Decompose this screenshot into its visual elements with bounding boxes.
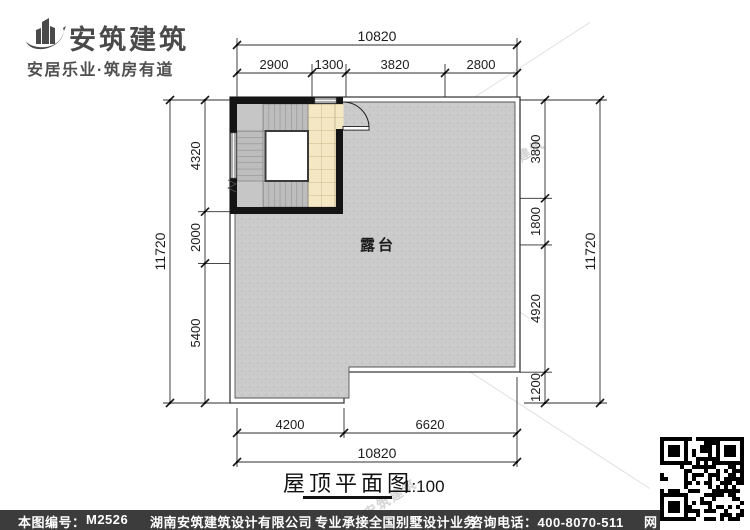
dim-label: 3800 bbox=[528, 135, 543, 164]
door-leaf bbox=[343, 127, 369, 131]
dim-label: 1800 bbox=[528, 207, 543, 236]
stair-flight-top bbox=[263, 104, 308, 131]
room-label-terrace: 露台 bbox=[360, 236, 396, 254]
footer-phone: 咨询电话：400-8070-511 bbox=[470, 512, 624, 530]
floor-plan-drawing: 露台 10820 2900 1300 3820 2800 bbox=[0, 0, 750, 530]
title-block: 屋顶平面图 1:100 bbox=[283, 471, 445, 499]
dim-label: 11720 bbox=[152, 232, 168, 270]
stair-void bbox=[266, 131, 309, 181]
footer-bar: 本图编号： M2526 湖南安筑建筑设计有限公司 专业承接全国别墅设计业务 咨询… bbox=[0, 510, 750, 530]
dim-label: 6620 bbox=[416, 417, 445, 432]
dim-label: 1300 bbox=[315, 57, 344, 72]
dim-left: 11720 4320 2000 5400 bbox=[152, 96, 230, 407]
qr-code bbox=[660, 437, 750, 530]
footer-company: 湖南安筑建筑设计有限公司 bbox=[150, 512, 312, 530]
dim-label: 4320 bbox=[188, 141, 203, 170]
dim-label: 10820 bbox=[358, 28, 397, 44]
dim-label: 1200 bbox=[528, 373, 543, 402]
qr-code-pattern bbox=[660, 437, 744, 521]
door-bay-tiles bbox=[336, 104, 344, 129]
drawing-scale: 1:100 bbox=[402, 477, 445, 496]
drawing-title: 屋顶平面图 bbox=[283, 471, 413, 496]
footer-service: 专业承接全国别墅设计业务 bbox=[315, 512, 477, 530]
dim-label: 4920 bbox=[528, 294, 543, 323]
dim-label: 5400 bbox=[188, 319, 203, 348]
dim-label: 2900 bbox=[260, 57, 289, 72]
tiled-floor bbox=[308, 104, 336, 207]
stair-flight-bottom bbox=[263, 181, 308, 207]
dim-label: 10820 bbox=[358, 445, 397, 461]
dim-label: 2800 bbox=[467, 57, 496, 72]
footer-web-char: 网 bbox=[644, 512, 658, 530]
dim-label: 2000 bbox=[188, 223, 203, 252]
stair-flight-left bbox=[237, 131, 263, 181]
dim-label: 4200 bbox=[276, 417, 305, 432]
dim-label: 11720 bbox=[582, 232, 598, 270]
sheet-number-value: M2526 bbox=[86, 512, 128, 527]
drawing-sheet: 安筑建筑 安居乐业·筑房有道 安筑建筑 安筑建筑 安筑建筑 安筑建筑 安筑建筑 … bbox=[0, 0, 750, 530]
sheet-number-label: 本图编号： bbox=[18, 512, 86, 530]
dim-label: 3820 bbox=[381, 57, 410, 72]
dim-top: 10820 2900 1300 3820 2800 bbox=[233, 28, 521, 97]
title-underline bbox=[303, 496, 392, 499]
dim-right: 3800 1800 4920 1200 11720 bbox=[520, 96, 607, 407]
